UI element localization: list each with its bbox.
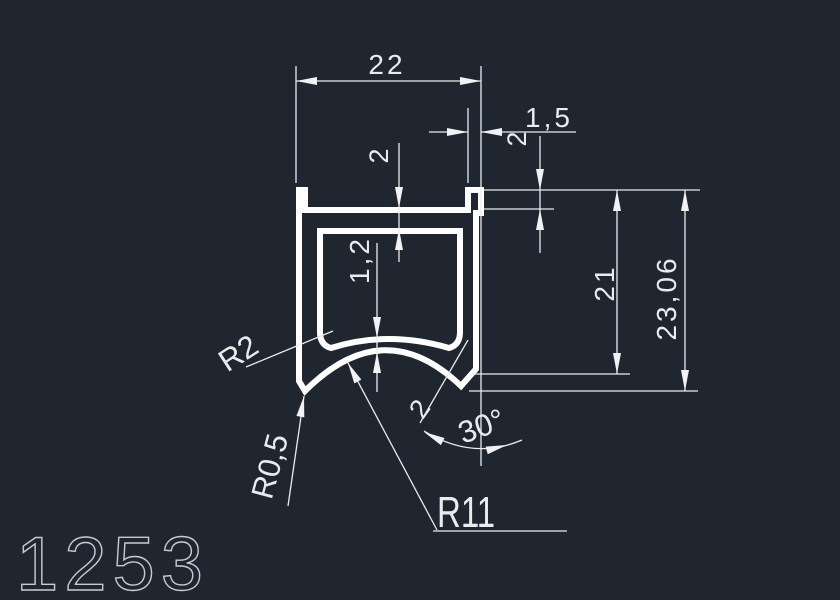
label-lip-height: 2 <box>502 131 532 146</box>
arrow-width-right <box>460 77 481 85</box>
arrow-archwall-bottom <box>373 352 381 373</box>
arrow-lipwidth-left <box>447 128 468 136</box>
label-overall-width: 22 <box>368 49 405 80</box>
leader-r11 <box>348 363 437 530</box>
arrow-innerheight-top <box>613 190 621 211</box>
label-inner-height: 21 <box>589 264 620 301</box>
label-chamfer-angle: 30° <box>453 402 509 451</box>
arrow-lipheight-bottom <box>536 209 544 230</box>
profile-outline-group <box>299 190 481 391</box>
arrow-angle-left <box>422 428 444 445</box>
cad-drawing-canvas[interactable]: 22 1,5 2 2 1,2 21 23,06 R2 R0,5 R11 2 30… <box>0 0 840 600</box>
label-corner-radius-r2: R2 <box>212 328 264 379</box>
arrow-lipheight-top <box>536 169 544 190</box>
profile-drawing: 22 1,5 2 2 1,2 21 23,06 R2 R0,5 R11 2 30… <box>0 0 840 600</box>
arrow-r11-leader <box>344 361 361 383</box>
arrow-overallheight-bottom <box>681 370 689 391</box>
profile-number: 1253 <box>16 522 209 600</box>
arrow-r05-leader <box>296 395 308 417</box>
arrow-archwall-top <box>373 317 381 338</box>
arrow-innerheight-bottom <box>613 353 621 374</box>
label-arch-wall-thickness: 1,2 <box>344 236 375 284</box>
arrow-topwall-top <box>395 187 403 208</box>
arrow-overallheight-top <box>681 190 689 211</box>
label-top-wall-thickness: 2 <box>364 148 394 163</box>
label-tip-radius-r05: R0,5 <box>244 430 295 502</box>
arrow-width-left <box>296 77 317 85</box>
arrow-angle-right <box>486 441 508 454</box>
dimension-labels: 22 1,5 2 2 1,2 21 23,06 R2 R0,5 R11 2 30… <box>212 49 682 537</box>
arrow-lipwidth-right <box>481 128 502 136</box>
profile-outer-outline <box>299 190 481 391</box>
label-lip-width: 1,5 <box>525 102 573 133</box>
label-chamfer-length: 2 <box>403 394 436 424</box>
label-overall-height: 23,06 <box>651 255 682 340</box>
profile-inner-cavity <box>320 231 460 348</box>
label-arch-radius-r11: R11 <box>437 489 495 538</box>
